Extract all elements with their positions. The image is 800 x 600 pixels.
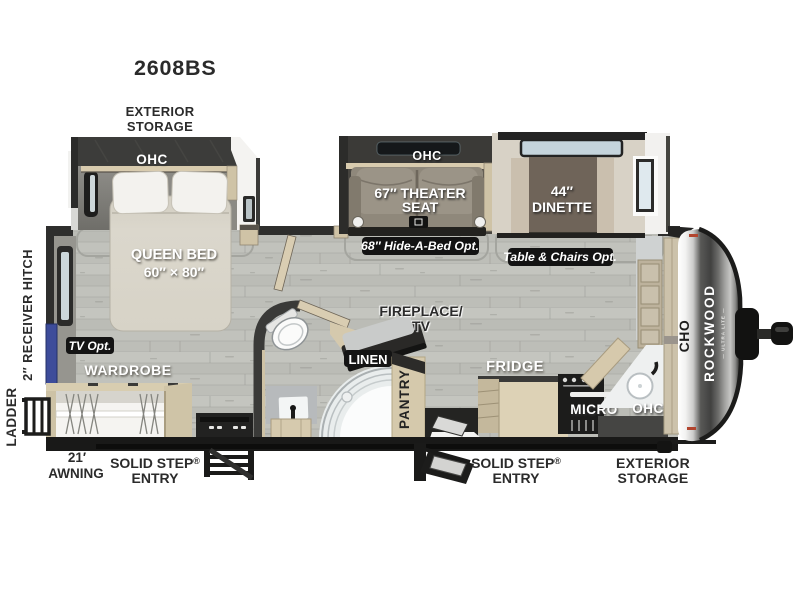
svg-text:68″ Hide-A-Bed Opt.: 68″ Hide-A-Bed Opt. <box>361 239 479 253</box>
svg-text:LADDER: LADDER <box>4 387 19 446</box>
svg-text:Table & Chairs Opt.: Table & Chairs Opt. <box>503 250 617 264</box>
svg-text:PANTRY: PANTRY <box>397 369 412 429</box>
svg-text:SEAT: SEAT <box>402 199 439 215</box>
svg-text:LINEN: LINEN <box>349 352 388 367</box>
svg-text:SOLID STEP®: SOLID STEP® <box>110 455 200 471</box>
svg-text:OHC: OHC <box>136 152 168 167</box>
svg-text:OHC: OHC <box>632 401 664 416</box>
svg-text:QUEEN BED: QUEEN BED <box>131 247 217 263</box>
svg-text:FIREPLACE/: FIREPLACE/ <box>379 303 462 319</box>
svg-text:ENTRY: ENTRY <box>493 470 541 486</box>
svg-text:SOLID STEP®: SOLID STEP® <box>471 455 561 471</box>
svg-text:ENTRY: ENTRY <box>132 470 180 486</box>
svg-text:CHO: CHO <box>676 320 692 353</box>
svg-text:WARDROBE: WARDROBE <box>84 362 171 378</box>
svg-text:EXTERIOR: EXTERIOR <box>616 455 690 471</box>
svg-text:EXTERIOR: EXTERIOR <box>126 104 195 119</box>
svg-text:— ULTRA LITE —: — ULTRA LITE — <box>721 307 726 358</box>
svg-text:ROCKWOOD: ROCKWOOD <box>702 284 717 382</box>
svg-text:FRIDGE: FRIDGE <box>486 359 544 375</box>
svg-text:2″ RECEIVER HITCH: 2″ RECEIVER HITCH <box>20 249 35 381</box>
svg-text:STORAGE: STORAGE <box>617 470 688 486</box>
svg-text:OHC: OHC <box>412 149 441 163</box>
svg-text:AWNING: AWNING <box>48 466 104 481</box>
svg-text:DINETTE: DINETTE <box>532 199 592 215</box>
svg-text:2608BS: 2608BS <box>134 56 217 80</box>
svg-text:TV: TV <box>412 318 431 334</box>
svg-text:STORAGE: STORAGE <box>127 119 193 134</box>
svg-text:44″: 44″ <box>551 183 574 199</box>
svg-text:21′: 21′ <box>68 450 86 465</box>
svg-text:60″ × 80″: 60″ × 80″ <box>144 264 205 280</box>
svg-text:TV Opt.: TV Opt. <box>69 339 112 353</box>
